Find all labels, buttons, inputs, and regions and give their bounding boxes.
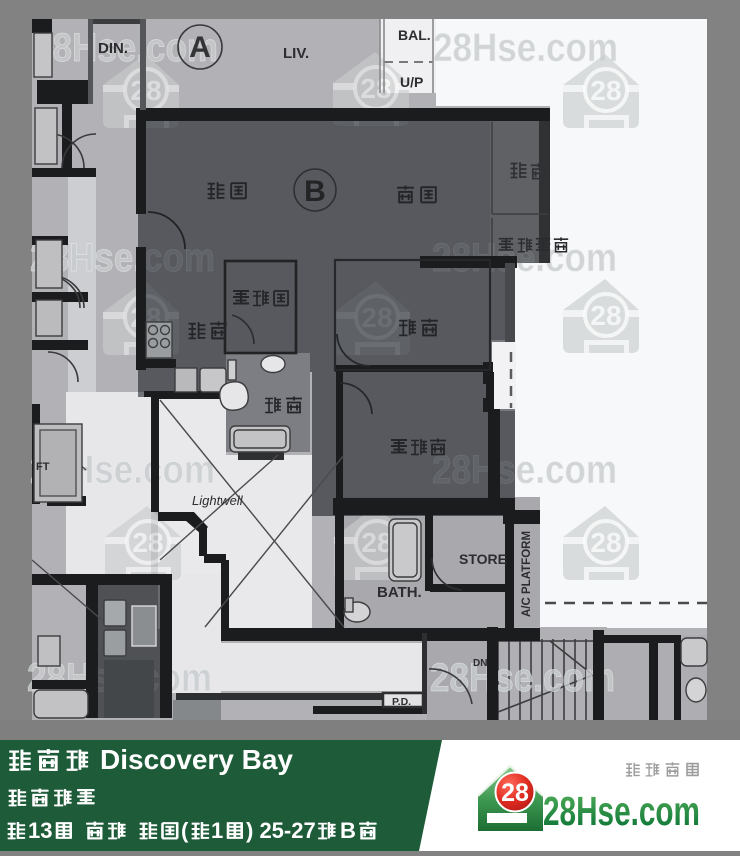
svg-text:Lightwell: Lightwell: [192, 493, 244, 508]
svg-text:B: B: [340, 818, 356, 843]
svg-text:A/C PLATFORM: A/C PLATFORM: [521, 531, 533, 617]
svg-text:Discovery Bay: Discovery Bay: [100, 744, 293, 775]
svg-text:1: 1: [211, 818, 223, 843]
svg-text:28: 28: [501, 779, 529, 807]
svg-text:STORE: STORE: [459, 551, 507, 567]
svg-text:A: A: [189, 31, 211, 64]
svg-text:LIV.: LIV.: [283, 45, 309, 62]
svg-text:DIN.: DIN.: [98, 40, 128, 57]
svg-text:P.D.: P.D.: [392, 696, 411, 708]
svg-text:28Hse.com: 28Hse.com: [543, 788, 700, 834]
svg-text:DN: DN: [473, 658, 487, 669]
svg-text:) 25-27: ) 25-27: [246, 818, 316, 843]
svg-text:U/P: U/P: [400, 74, 423, 90]
svg-text:FT: FT: [36, 461, 50, 473]
svg-text:(: (: [181, 818, 189, 843]
svg-text:BATH.: BATH.: [377, 584, 422, 601]
svg-text:13: 13: [28, 818, 52, 843]
svg-text:BAL.: BAL.: [398, 27, 431, 43]
svg-text:B: B: [304, 175, 326, 208]
